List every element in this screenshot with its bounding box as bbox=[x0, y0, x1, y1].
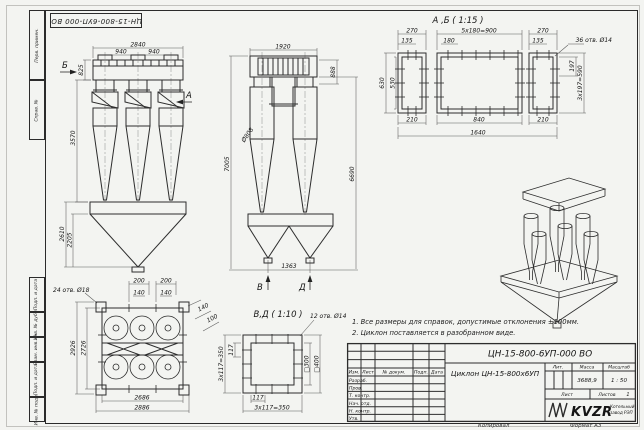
col-izm: Изм. bbox=[349, 370, 360, 376]
plan-view-dimensions bbox=[75, 281, 219, 413]
plan-view-cyclone-circles bbox=[104, 316, 180, 379]
col-doc: № докум. bbox=[382, 370, 406, 376]
flange-view-ab: А ,Б ( 1:15 ) 270 5x180=900 270 135 180 … bbox=[370, 14, 620, 164]
dim-180: 180 bbox=[443, 38, 455, 45]
dim-2926: 2926 bbox=[70, 340, 77, 355]
flange-view-vd: В,Д ( 1:10 ) 12 отв. Ø14 117 3x117=350 1… bbox=[218, 300, 348, 415]
dim-inlet-height: 825 bbox=[78, 64, 85, 76]
product-name: Циклон ЦН-15-800х6УП bbox=[451, 369, 540, 378]
front-view: 2840 940 940 825 3570 2610 2205 Б А bbox=[58, 42, 243, 277]
dim-2886: 2886 bbox=[134, 405, 149, 412]
dim-210-left: 210 bbox=[406, 117, 418, 124]
lit-label: Лит. bbox=[552, 365, 564, 371]
dim-pitch-left: 3x117=350 bbox=[218, 346, 225, 381]
dim-630: 630 bbox=[379, 77, 386, 89]
margin-field-podp-data-2: Подп. и дата bbox=[29, 362, 45, 397]
scale-label: Масштаб bbox=[608, 365, 630, 371]
col-data: Дата bbox=[430, 370, 443, 376]
dim-3x197: 3x197=590 bbox=[577, 65, 584, 100]
view-arrow-v: В bbox=[257, 275, 270, 293]
dim-total-height: 7005 bbox=[224, 156, 231, 171]
view-arrow-v-label: В bbox=[257, 283, 263, 293]
dim-top-width: 1920 bbox=[275, 44, 290, 51]
dim-2686: 2686 bbox=[134, 395, 149, 402]
col-list: Лист bbox=[361, 370, 374, 376]
sheets-value: 1 bbox=[626, 392, 629, 398]
plan-holes-note: 24 отв. Ø18 bbox=[53, 287, 90, 294]
sheets-label: Листов bbox=[597, 392, 615, 398]
format-label: Формат А3 bbox=[570, 423, 601, 429]
dim-840: 840 bbox=[473, 117, 485, 124]
dim-197: 197 bbox=[569, 60, 576, 72]
technical-notes: 1. Все размеры для справок, допустимые о… bbox=[352, 317, 636, 339]
margin-field-sprav: Справ. № bbox=[29, 80, 45, 140]
dim-cone-height: 2205 bbox=[67, 232, 74, 247]
dim-diameter: Ø808 bbox=[240, 126, 256, 144]
logo-text: KVZR bbox=[571, 405, 613, 420]
view-arrow-a-label: А bbox=[185, 91, 192, 101]
margin-field-podp-data-1: Подп. и дата bbox=[29, 277, 45, 312]
margin-field-label: Перв. примен. bbox=[35, 28, 40, 63]
dim-2726: 2726 bbox=[81, 340, 88, 355]
side-view: 1920 888 Ø808 7005 6690 1363 В Д bbox=[225, 44, 370, 294]
row-nach-otd: Нач. отд. bbox=[349, 401, 371, 407]
dim-outlet-span: 1363 bbox=[281, 263, 296, 270]
col-podp: Подп. bbox=[414, 370, 428, 376]
dim-hopper-height: 2610 bbox=[59, 226, 66, 241]
dim-pitch-bottom: 3x117=350 bbox=[254, 405, 289, 412]
margin-field-label: Справ. № bbox=[35, 99, 40, 121]
rotated-doc-number-stamp: ЦН-15-800-6УП-000 ВО bbox=[50, 13, 142, 28]
margin-field-label: Инв. № подл. bbox=[35, 394, 40, 426]
flange-vd-title: В,Д ( 1:10 ) bbox=[254, 310, 303, 320]
mass-value: 3688,9 bbox=[577, 378, 597, 384]
mass-label: Масса bbox=[580, 365, 595, 371]
dim-bay-1: 940 bbox=[115, 49, 127, 56]
dim-200-2: 200 bbox=[160, 278, 172, 285]
view-arrow-b-label: Б bbox=[62, 61, 68, 71]
copied-label: Копировал bbox=[478, 423, 509, 429]
sheet-label: Лист bbox=[560, 392, 573, 398]
flange-vd-holes-note: 12 отв. Ø14 bbox=[310, 313, 347, 320]
company-logo: KVZR Котельный завод РЭП bbox=[549, 403, 635, 420]
isometric-outline bbox=[501, 178, 617, 328]
dim-140-2: 140 bbox=[160, 290, 172, 297]
note-line-2: 2. Циклон поставляется в разобранном вид… bbox=[352, 328, 636, 339]
dim-1640: 1640 bbox=[470, 130, 485, 137]
dim-total-width: 2840 bbox=[130, 42, 145, 49]
dim-body-height: 3570 bbox=[70, 130, 77, 145]
margin-field-perv-primen: Перв. примен. bbox=[29, 10, 45, 80]
scale-value: 1 : 50 bbox=[611, 378, 628, 384]
front-view-dimensions bbox=[64, 46, 183, 267]
row-n-kontr: Н. контр. bbox=[349, 409, 371, 415]
row-t-kontr: Т. контр. bbox=[349, 393, 370, 399]
margin-field-label: Взам. инв. № bbox=[35, 334, 40, 365]
dim-inlet: 888 bbox=[330, 66, 337, 78]
dim-135-right: 135 bbox=[532, 38, 544, 45]
margin-field-label: Подп. и дата bbox=[35, 279, 40, 310]
dim-117-left: 117 bbox=[228, 344, 235, 356]
dim-140-diag: 140 bbox=[197, 302, 211, 314]
row-utv: Утв. bbox=[349, 416, 359, 422]
view-arrow-d-label: Д bbox=[298, 283, 306, 293]
dim-square-400: □400 bbox=[314, 355, 321, 372]
flange-ab-bolt-ticks bbox=[395, 50, 560, 116]
doc-number: ЦН-15-800-6УП-000 ВО bbox=[488, 350, 592, 360]
dim-270-right: 270 bbox=[537, 28, 549, 35]
dim-pitch: 5x180=900 bbox=[461, 28, 496, 35]
view-arrow-d: Д bbox=[298, 275, 312, 293]
flange-ab-holes-note: 36 отв. Ø14 bbox=[576, 37, 613, 44]
front-view-centerlines bbox=[105, 52, 171, 204]
company-line-1: Котельный bbox=[610, 404, 635, 409]
side-view-dimensions bbox=[229, 48, 358, 273]
margin-field-inv-podl: Инв. № подл. bbox=[29, 397, 45, 422]
company-line-2: завод РЭП bbox=[610, 410, 633, 415]
dim-square-300: □300 bbox=[304, 355, 311, 372]
dim-117-bottom: 117 bbox=[252, 395, 264, 402]
side-view-outline bbox=[248, 56, 333, 263]
row-prov: Пров. bbox=[349, 386, 362, 392]
isometric-view bbox=[485, 172, 635, 335]
plan-view: 24 отв. Ø18 200 200 140 140 140 100 2926… bbox=[45, 275, 245, 421]
dim-bay-2: 940 bbox=[148, 49, 160, 56]
dim-right-height: 6690 bbox=[349, 166, 356, 181]
title-block: Изм. Лист № докум. Подп. Дата Разраб. Пр… bbox=[347, 343, 636, 422]
view-arrow-b: Б bbox=[60, 61, 77, 74]
dim-135-left: 135 bbox=[401, 38, 413, 45]
margin-field-label: Подп. и дата bbox=[35, 364, 40, 395]
dim-210-right: 210 bbox=[537, 117, 549, 124]
row-razrab: Разраб. bbox=[349, 378, 367, 384]
dim-140-1: 140 bbox=[133, 290, 145, 297]
rotated-doc-number: ЦН-15-800-6УП-000 ВО bbox=[51, 17, 142, 25]
dim-200-1: 200 bbox=[133, 278, 145, 285]
flange-ab-title: А ,Б ( 1:15 ) bbox=[432, 16, 484, 26]
spring-icon bbox=[549, 403, 567, 417]
note-line-1: 1. Все размеры для справок, допустимые о… bbox=[352, 317, 636, 328]
margin-field-vzam-inv: Взам. инв. № bbox=[29, 337, 45, 362]
dim-270-left: 270 bbox=[406, 28, 418, 35]
